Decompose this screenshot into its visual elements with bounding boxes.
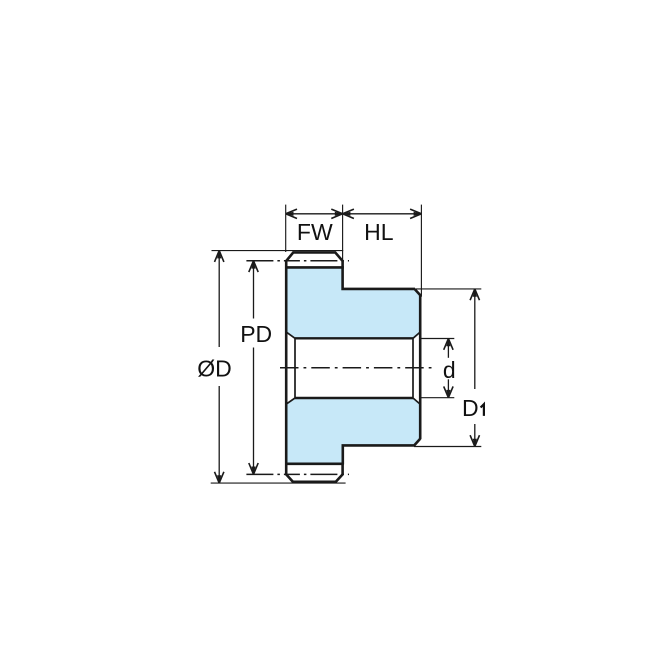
svg-text:FW: FW [297, 219, 333, 245]
svg-text:d: d [443, 357, 456, 383]
svg-text:ØD: ØD [197, 355, 232, 381]
svg-text:D: D [462, 395, 479, 421]
svg-text:HL: HL [364, 219, 394, 245]
svg-text:PD: PD [240, 321, 272, 347]
